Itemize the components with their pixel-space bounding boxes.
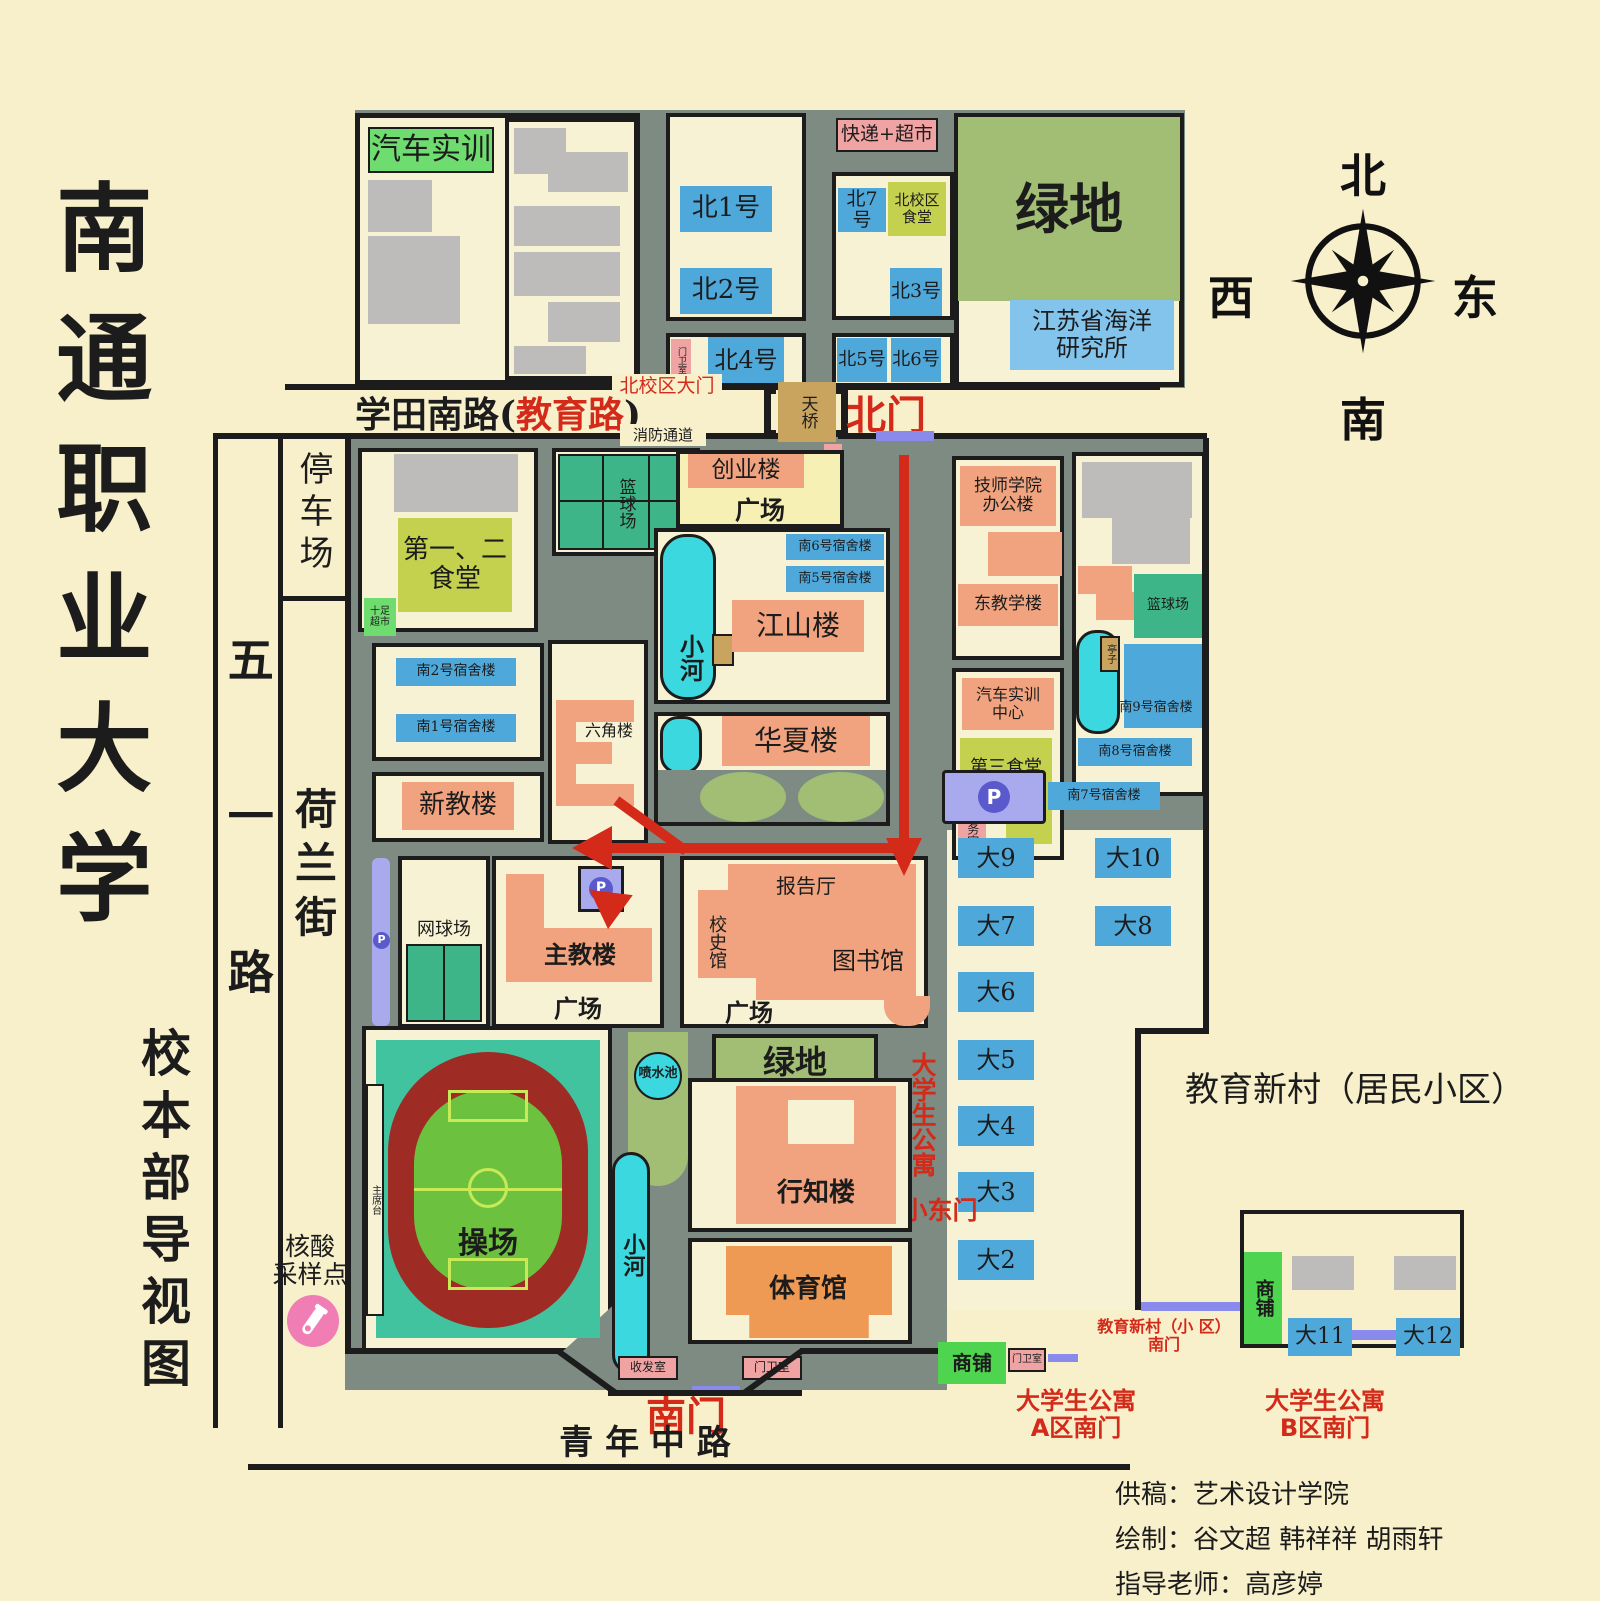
apartment-b-gate-label: 大学生公寓 B区南门 <box>1240 1386 1410 1444</box>
building-gray <box>394 454 518 512</box>
parking-circle: P <box>373 932 390 949</box>
north-campus-canteen: 北校区 食堂 <box>888 182 946 236</box>
river-huaxia <box>660 716 702 774</box>
huaxia-building: 华夏楼 <box>722 716 870 766</box>
dorm-south-2: 南2号宿舍楼 <box>396 658 516 686</box>
building-gray <box>1112 518 1190 564</box>
building-orange <box>1078 566 1132 594</box>
express-supermarket: 快递+超市 <box>836 118 938 152</box>
compass-north-label: 北 <box>1340 140 1386 206</box>
apartment-d7: 大7 <box>958 906 1034 946</box>
history-hall-label: 校史馆 <box>702 902 730 982</box>
building-gray <box>1394 1256 1456 1290</box>
hexagon-bar <box>556 742 612 764</box>
route-line-vertical <box>899 455 909 841</box>
lecture-hall-label: 报告厅 <box>756 874 856 898</box>
green-oval <box>798 772 884 822</box>
building-gray <box>368 236 460 324</box>
building-gray <box>368 180 432 232</box>
xinjiao-building: 新教楼 <box>402 782 514 830</box>
parking-street-label: 停车场 <box>292 444 334 584</box>
xingzhi-label: 行知楼 <box>752 1180 880 1208</box>
xincun-area-label: 教育新村（居民小区） <box>1180 1068 1530 1112</box>
credits-line-3: 指导老师：高彦婷 <box>1115 1564 1585 1601</box>
map-subtitle: 校本部导视图 <box>126 1022 198 1404</box>
court-line <box>443 944 445 1022</box>
dorm-south-6: 南6号宿舍楼 <box>786 534 884 560</box>
compass-east-label: 东 <box>1452 262 1498 328</box>
building-gray <box>1082 462 1192 518</box>
court-line <box>648 454 650 550</box>
campus-east-boundary-lower <box>1135 1028 1141 1310</box>
field-center-circle <box>468 1168 508 1208</box>
auto-training-center: 汽车实训 中心 <box>962 678 1054 730</box>
fire-lane-label: 消防通道 <box>620 424 706 446</box>
gate-connector <box>1141 1302 1244 1311</box>
basketball-north-label: 篮球场 <box>612 456 638 550</box>
tennis-label: 网球场 <box>400 918 488 942</box>
shizu-supermarket: 十足 超市 <box>364 598 396 636</box>
qingnian-road-line <box>248 1464 1130 1470</box>
compass-west-label: 西 <box>1208 262 1254 328</box>
field-penalty-box <box>448 1090 528 1122</box>
xincun-south-gate-label: 教育新村（小 区） 南门 <box>1086 1314 1242 1358</box>
building-gray <box>548 302 620 342</box>
parking-circle: P <box>978 781 1010 813</box>
dorm-north-7: 北7号 <box>838 188 886 232</box>
xuetian-road-label: 学田南路(教育路) <box>352 394 644 436</box>
route-arrowhead-left <box>572 826 612 870</box>
apartment-d9: 大9 <box>958 838 1034 878</box>
dorm-south-1: 南1号宿舍楼 <box>396 714 516 742</box>
credits-line-2: 绘制：谷文超 韩祥祥 胡雨轩 <box>1115 1519 1585 1556</box>
dorm-south-5: 南5号宿舍楼 <box>786 566 884 592</box>
campus-west-boundary <box>345 433 351 1352</box>
canteen-1-2: 第一、二 食堂 <box>398 518 512 612</box>
plaza-label: 广场 <box>694 1000 804 1026</box>
chuangye-building: 创业楼 <box>688 454 804 488</box>
route-line-horizontal <box>610 843 904 853</box>
wuyi-road-label: 五一路 <box>224 630 270 1110</box>
pavilion: 亭子 <box>1100 636 1120 672</box>
building-gray <box>514 252 620 296</box>
nucleic-sampling-label: 核酸 采样点 <box>264 1226 356 1296</box>
building-gray <box>514 346 586 374</box>
xingzhi-notch <box>788 1100 854 1144</box>
apartment-d10: 大10 <box>1095 838 1171 878</box>
apartment-d4: 大4 <box>958 1106 1034 1146</box>
rostrum: 主席台 <box>366 1084 384 1316</box>
building-gray <box>548 152 628 192</box>
library-label: 图书馆 <box>818 948 918 974</box>
dorm-north-5: 北5号 <box>837 338 887 382</box>
footbridge: 天桥 <box>778 382 836 442</box>
credits-line-1: 供稿：艺术设计学院 <box>1115 1474 1585 1511</box>
dorm-north-3: 北3号 <box>890 268 942 316</box>
dorm-north-2: 北2号 <box>680 268 772 314</box>
apartment-d8: 大8 <box>1095 906 1171 946</box>
apartment-a-gate-label: 大学生公寓 A区南门 <box>996 1386 1156 1444</box>
dorm-south-9-label: 南9号宿舍楼 <box>1106 698 1206 718</box>
campus-south-boundary <box>345 1348 561 1354</box>
building-gray <box>1292 1256 1354 1290</box>
school-title: 南通职业大学 <box>40 168 152 968</box>
marine-research-institute: 江苏省海洋 研究所 <box>1010 300 1174 370</box>
credits: 供稿：艺术设计学院 绘制：谷文超 韩祥祥 胡雨轩 指导老师：高彦婷 <box>1115 1474 1585 1601</box>
campus-south-boundary <box>608 1390 802 1396</box>
dorm-north-6: 北6号 <box>891 338 941 382</box>
shop-a: 商铺 <box>938 1342 1006 1384</box>
dorm-south-7: 南7号宿舍楼 <box>1048 782 1160 810</box>
dorm-north-1: 北1号 <box>680 186 772 232</box>
guard-room-a: 门卫室 <box>1008 1348 1046 1372</box>
green-oval <box>700 772 786 822</box>
fountain-label: 喷水池 <box>630 1064 686 1084</box>
road-tick <box>278 596 345 601</box>
river-south-label: 小河 <box>620 1210 644 1300</box>
gate-connector <box>1048 1354 1078 1362</box>
bridge <box>712 634 734 666</box>
jishi-office-building: 技师学院 办公楼 <box>960 466 1056 526</box>
mail-room: 收发室 <box>618 1356 678 1380</box>
stadium-label: 操场 <box>430 1228 546 1260</box>
gate-connector <box>1352 1330 1396 1340</box>
test-tube-icon <box>286 1294 340 1348</box>
apartment-d2: 大2 <box>958 1240 1034 1280</box>
auto-training-label: 汽车实训 <box>368 127 494 173</box>
green-space-north: 绿地 <box>958 117 1180 301</box>
court-line <box>602 454 604 550</box>
apartment-d5: 大5 <box>958 1040 1034 1080</box>
plaza-label: 广场 <box>492 996 664 1022</box>
dorm-south-8: 南8号宿舍楼 <box>1078 738 1192 766</box>
zhujiao-label: 主教楼 <box>520 942 640 968</box>
road-line-top <box>285 384 1160 390</box>
hexagon-bar <box>556 700 634 722</box>
building-orange <box>988 532 1062 576</box>
apartment-d11: 大11 <box>1288 1318 1352 1356</box>
apartment-d12: 大12 <box>1396 1318 1460 1356</box>
apartment-d6: 大6 <box>958 972 1034 1012</box>
dongjiao-building: 东教学楼 <box>958 584 1058 626</box>
campus-south-boundary <box>800 1348 947 1354</box>
jiangshan-building: 江山楼 <box>732 600 864 652</box>
field-penalty-box <box>448 1258 528 1290</box>
campus-boundary-step <box>1135 1028 1209 1034</box>
river-label-north: 小河 <box>676 620 702 696</box>
gate-line-north <box>876 431 934 441</box>
footbridge-bracket <box>764 387 776 437</box>
gym-label: 体育馆 <box>748 1276 868 1304</box>
helan-street-label: 荷兰街 <box>290 768 336 968</box>
campus-east-boundary <box>1203 438 1209 1034</box>
building-gray <box>514 206 620 246</box>
hexagon-label: 六角楼 <box>574 722 644 740</box>
wuyi-road-line-west <box>213 433 218 1428</box>
plaza-label: 广场 <box>676 498 844 524</box>
compass-south-label: 南 <box>1340 384 1386 450</box>
basketball-court-east: 篮球场 <box>1134 574 1202 638</box>
campus-map: 北 南 西 东 供稿：艺术设计学院 绘制：谷文超 韩祥祥 胡雨轩 指导老师：高彦… <box>0 0 1600 1600</box>
shop-b: 商铺 <box>1244 1252 1282 1344</box>
compass-rose-icon <box>1288 206 1438 356</box>
qingnian-road-label: 青 年 中 路 <box>430 1424 860 1462</box>
